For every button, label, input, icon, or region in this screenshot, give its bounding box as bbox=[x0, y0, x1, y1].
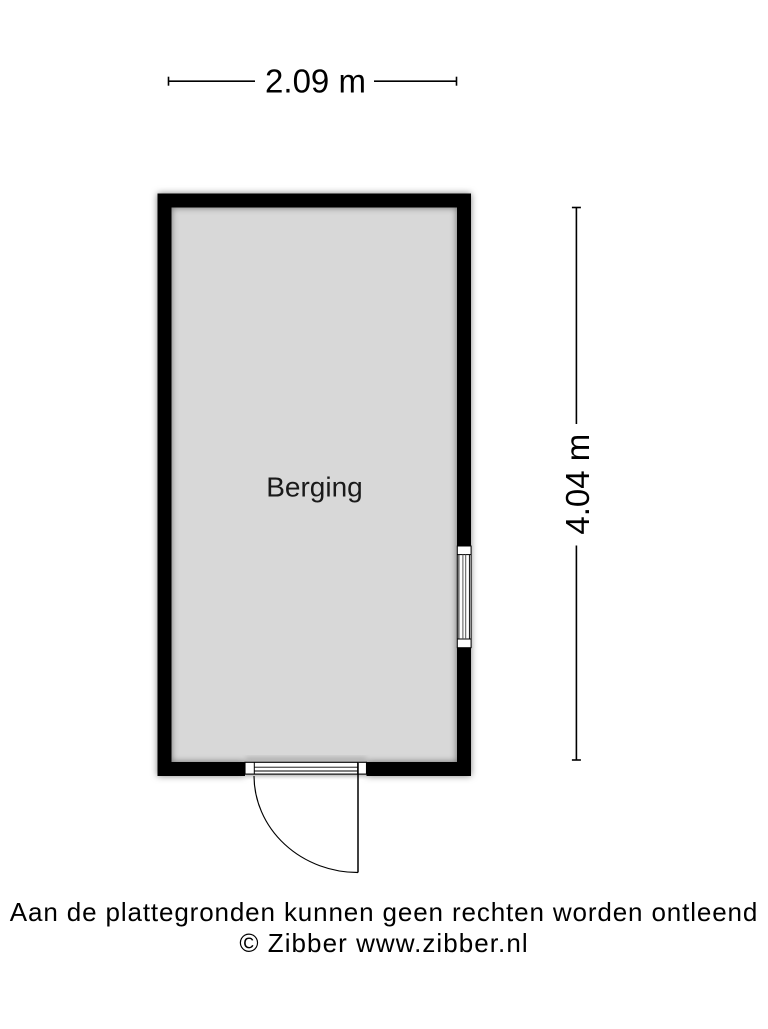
svg-text:Aan de plattegronden kunnen ge: Aan de plattegronden kunnen geen rechten… bbox=[10, 897, 758, 927]
svg-text:Berging: Berging bbox=[266, 472, 363, 503]
svg-text:4.04 m: 4.04 m bbox=[559, 434, 596, 535]
svg-text:2.09 m: 2.09 m bbox=[265, 62, 366, 99]
svg-text:© Zibber www.zibber.nl: © Zibber www.zibber.nl bbox=[239, 928, 528, 958]
